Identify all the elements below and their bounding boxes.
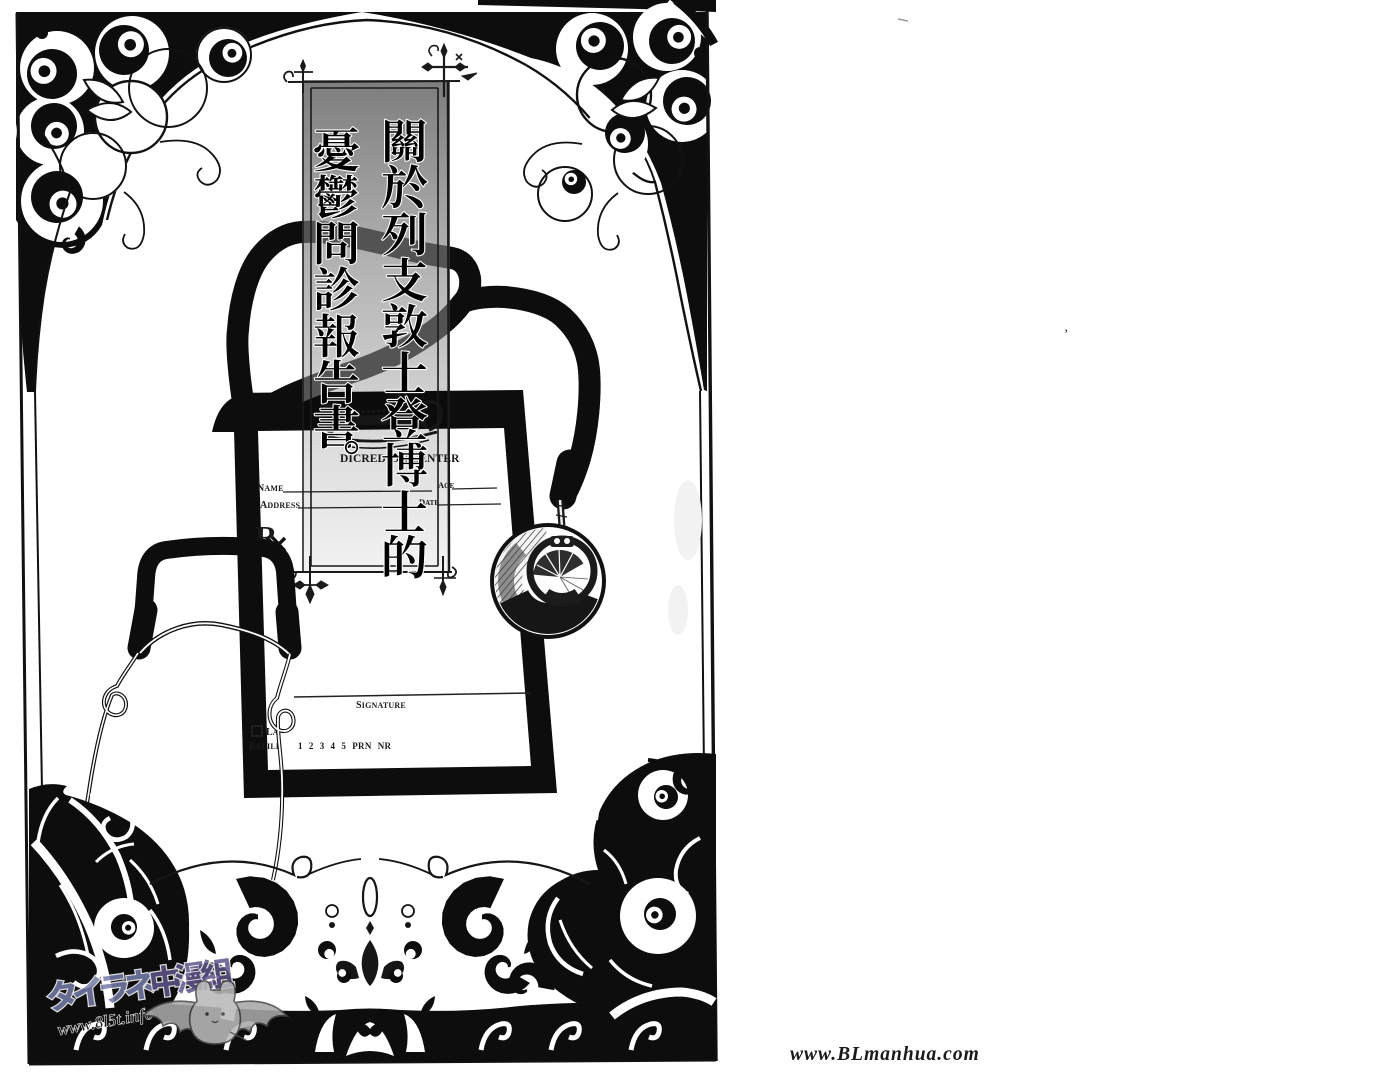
svg-text:www.BLmanhua.com: www.BLmanhua.com: [790, 1044, 980, 1065]
svg-text:’: ’: [1064, 326, 1068, 341]
svg-text:ADDRESS: ADDRESS: [260, 500, 301, 511]
svg-text:SIGNATURE: SIGNATURE: [356, 700, 406, 711]
svg-text:1 2 3 4 5 PRN NR: 1 2 3 4 5 PRN NR: [298, 741, 391, 751]
svg-text:NAME: NAME: [257, 483, 284, 494]
svg-text:REFILL: REFILL: [249, 741, 281, 752]
